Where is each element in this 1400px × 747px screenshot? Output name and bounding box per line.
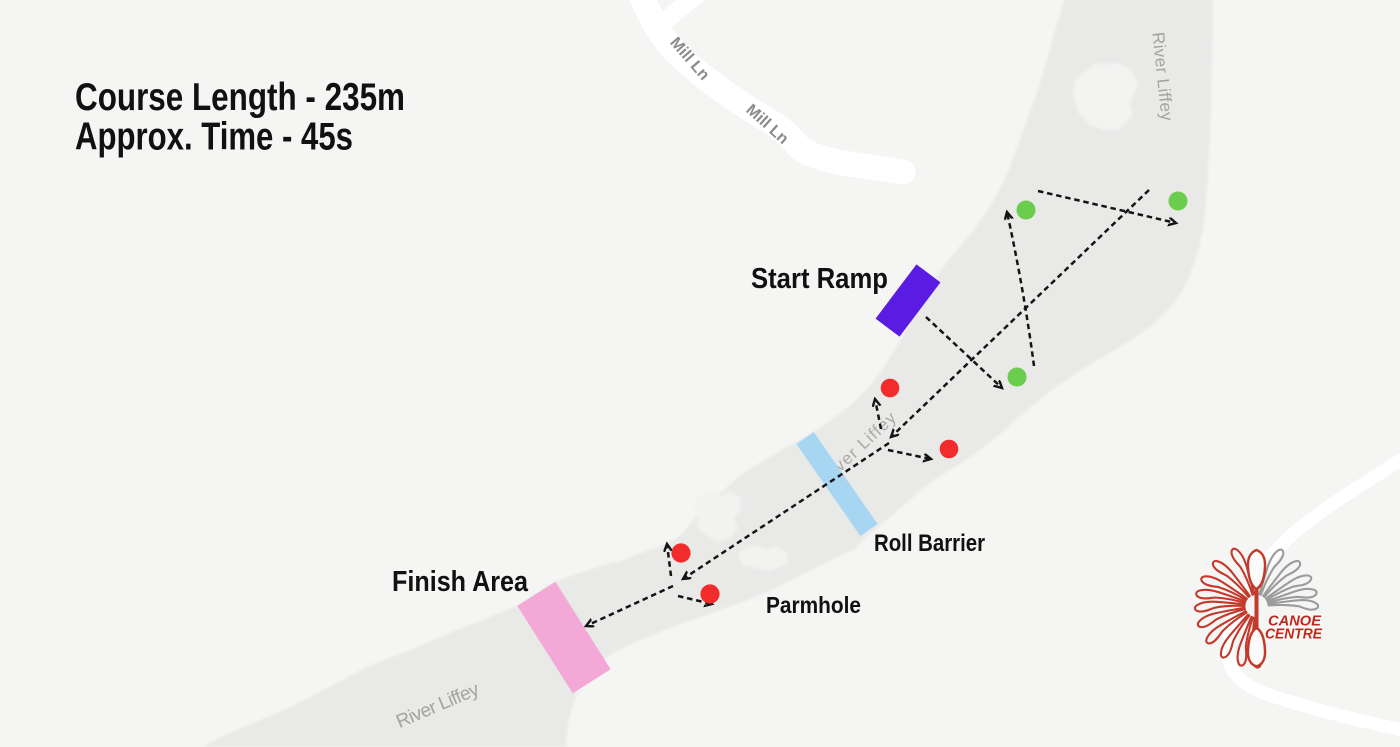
svg-text:Roll Barrier: Roll Barrier [874, 530, 985, 557]
svg-text:Start Ramp: Start Ramp [751, 263, 888, 295]
svg-text:Parmhole: Parmhole [766, 592, 861, 618]
svg-text:Approx. Time - 45s: Approx. Time - 45s [75, 116, 353, 159]
svg-text:Finish Area: Finish Area [392, 566, 529, 598]
svg-text:CENTRE: CENTRE [1265, 627, 1323, 643]
svg-text:Course Length - 235m: Course Length - 235m [75, 76, 405, 119]
